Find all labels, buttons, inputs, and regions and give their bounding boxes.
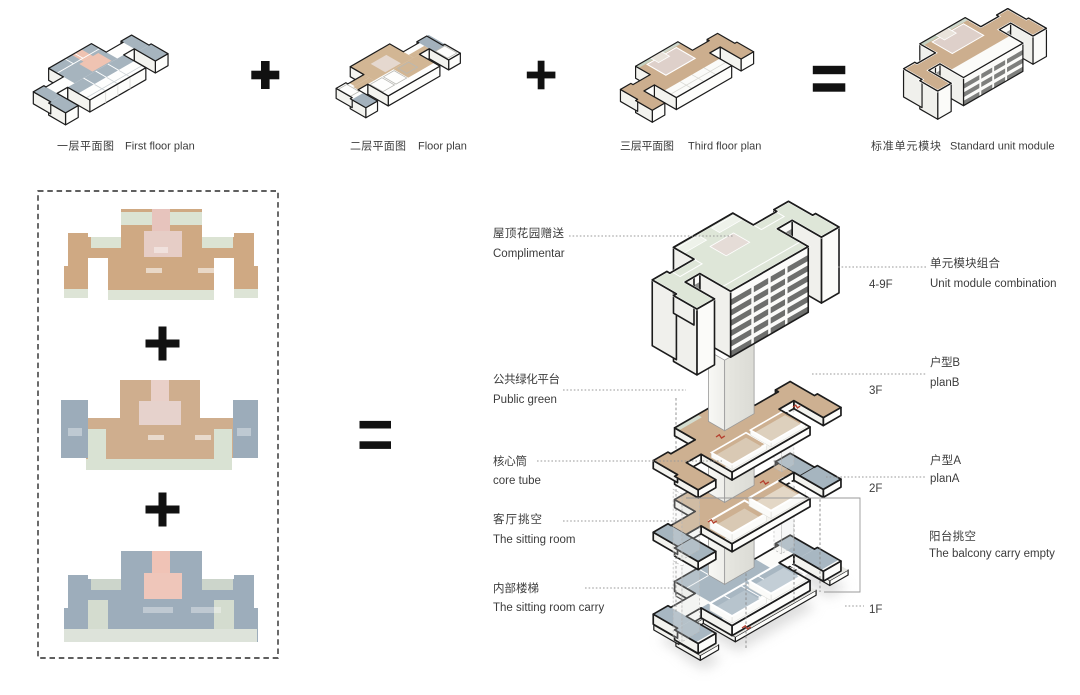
svg-text:planA: planA bbox=[930, 473, 960, 485]
svg-text:Third floor plan: Third floor plan bbox=[688, 141, 761, 153]
svg-text:The balcony carry empty: The balcony carry empty bbox=[929, 548, 1055, 560]
svg-text:户型A: 户型A bbox=[930, 453, 961, 467]
svg-text:公共绿化平台: 公共绿化平台 bbox=[493, 372, 560, 386]
svg-text:core tube: core tube bbox=[493, 475, 541, 487]
svg-text:First floor plan: First floor plan bbox=[125, 141, 195, 153]
svg-text:标准单元模块: 标准单元模块 bbox=[871, 139, 941, 153]
svg-text:屋顶花园赠送: 屋顶花园赠送 bbox=[493, 226, 565, 240]
svg-text:Unit module combination: Unit module combination bbox=[930, 278, 1057, 290]
svg-text:4-9F: 4-9F bbox=[869, 279, 893, 291]
svg-text:2F: 2F bbox=[869, 483, 882, 495]
svg-text:核心筒: 核心筒 bbox=[493, 454, 527, 468]
svg-text:planB: planB bbox=[930, 377, 960, 389]
svg-text:1F: 1F bbox=[869, 604, 882, 616]
svg-text:一层平面图: 一层平面图 bbox=[57, 140, 114, 153]
svg-text:Complimentar: Complimentar bbox=[493, 248, 565, 260]
svg-text:单元模块组合: 单元模块组合 bbox=[930, 256, 1001, 270]
svg-text:The sitting room: The sitting room bbox=[493, 534, 575, 546]
svg-text:户型B: 户型B bbox=[930, 355, 960, 369]
svg-text:Standard unit module: Standard unit module bbox=[950, 141, 1055, 153]
svg-text:Public green: Public green bbox=[493, 394, 557, 406]
svg-text:二层平面图: 二层平面图 bbox=[350, 140, 406, 153]
svg-text:Floor plan: Floor plan bbox=[418, 141, 467, 153]
svg-text:阳台挑空: 阳台挑空 bbox=[929, 529, 976, 543]
svg-text:The sitting room carry: The sitting room carry bbox=[493, 602, 604, 614]
svg-text:内部楼梯: 内部楼梯 bbox=[493, 581, 539, 595]
svg-text:客厅挑空: 客厅挑空 bbox=[493, 512, 542, 526]
svg-text:三层平面图: 三层平面图 bbox=[620, 140, 674, 153]
svg-text:3F: 3F bbox=[869, 385, 882, 397]
